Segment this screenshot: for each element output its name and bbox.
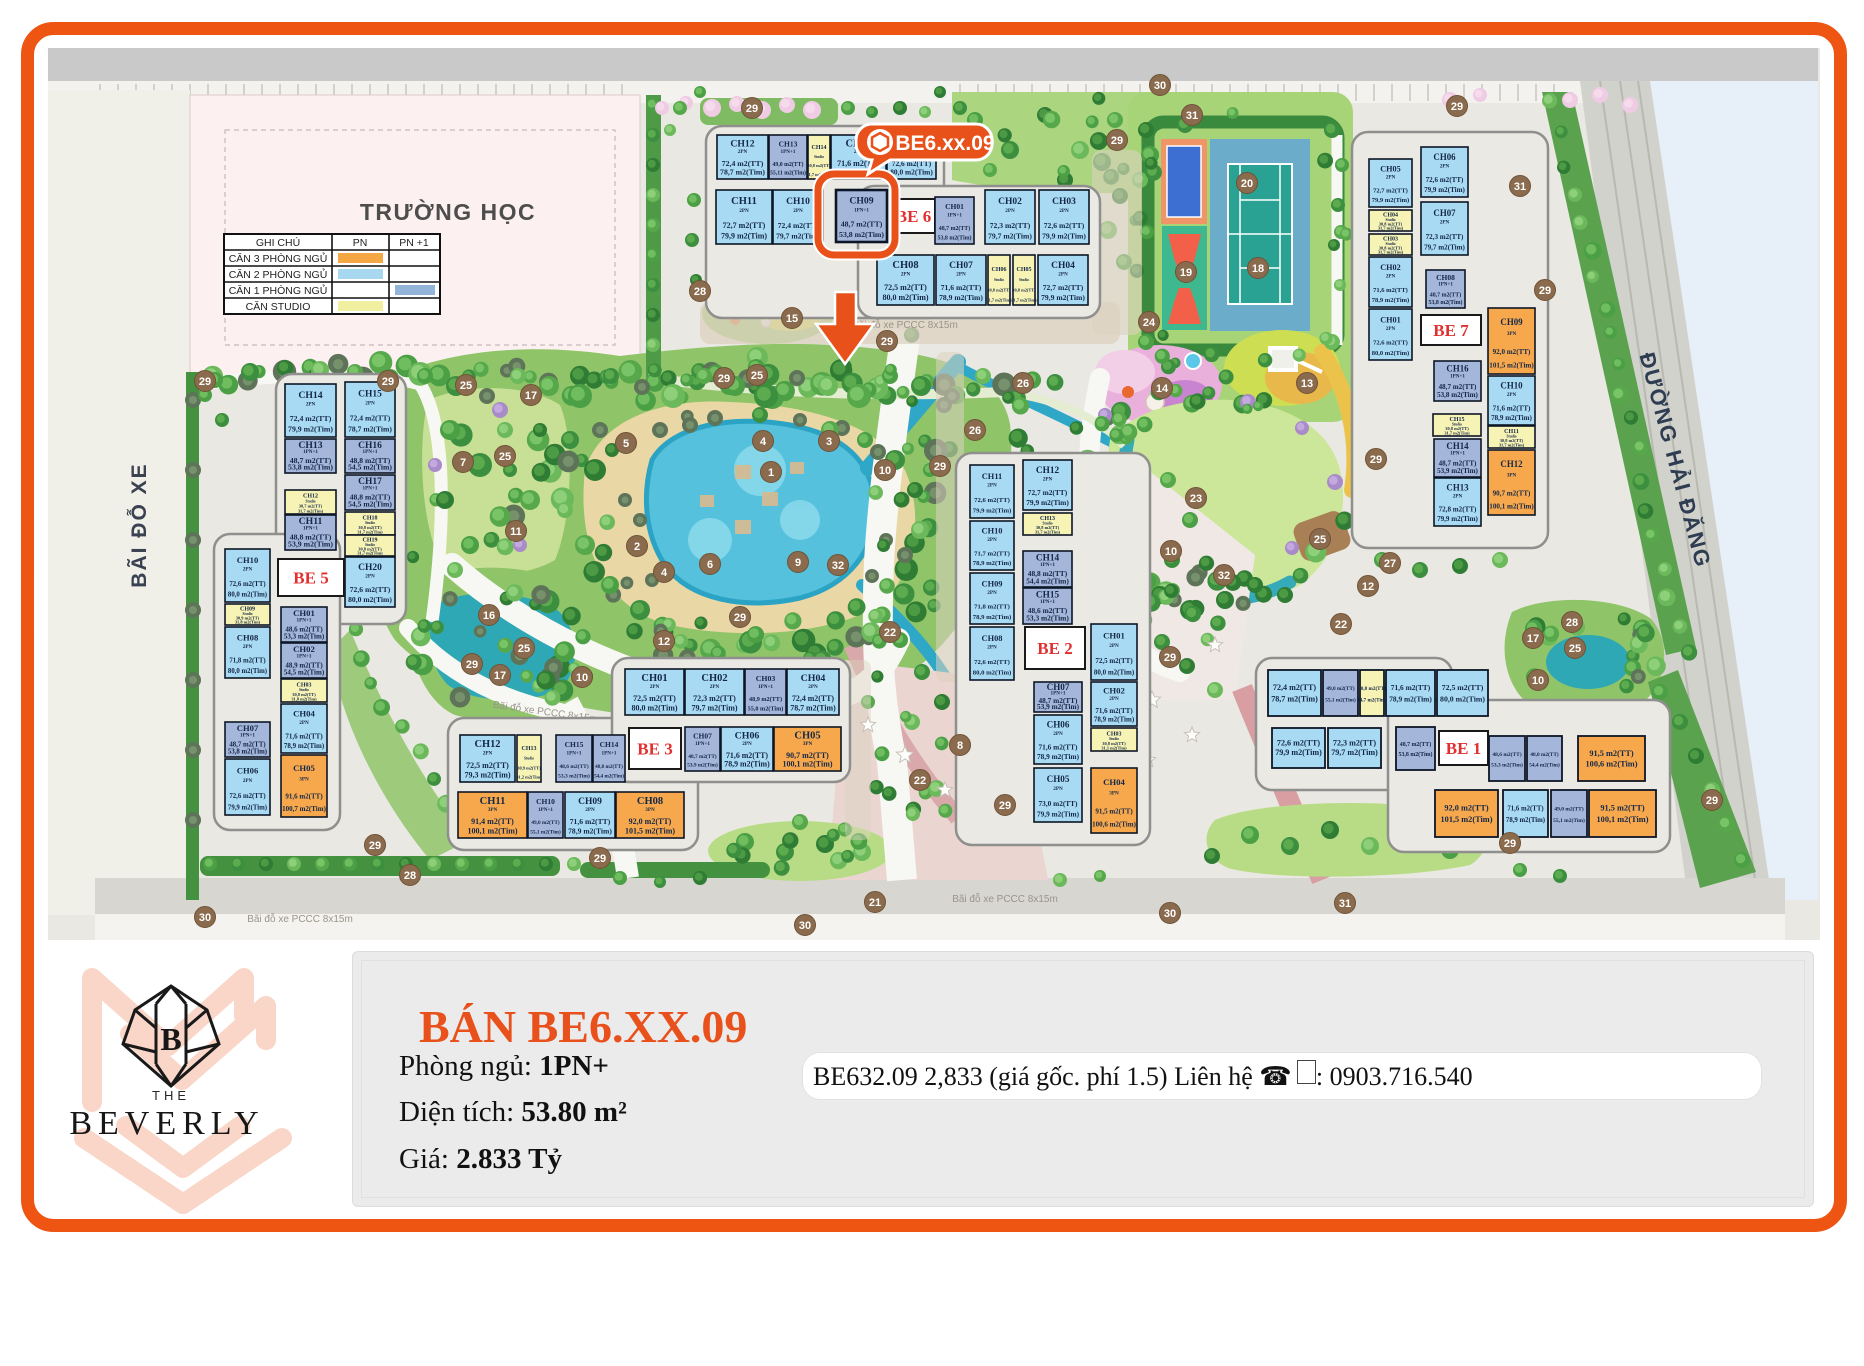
svg-text:79,9 m2(Tim): 79,9 m2(Tim): [1372, 197, 1409, 204]
svg-text:71,6 m2(TT): 71,6 m2(TT): [941, 283, 982, 292]
svg-text:2PN: 2PN: [987, 645, 997, 651]
svg-text:CH13: CH13: [1446, 482, 1469, 492]
svg-text:2PN: 2PN: [987, 483, 997, 489]
svg-text:91,5 m2(TT): 91,5 m2(TT): [1600, 804, 1644, 813]
svg-text:1PN+1: 1PN+1: [303, 525, 318, 531]
svg-text:CH06: CH06: [1433, 152, 1456, 162]
svg-text:25: 25: [460, 380, 472, 392]
svg-text:21: 21: [869, 897, 881, 909]
svg-text:1PN+1: 1PN+1: [1040, 599, 1055, 605]
svg-text:71,6 m2(TT): 71,6 m2(TT): [1373, 287, 1408, 294]
svg-text:2PN: 2PN: [987, 537, 997, 543]
svg-text:CĂN 3 PHÒNG NGỦ: CĂN 3 PHÒNG NGỦ: [229, 252, 328, 265]
svg-text:CH07: CH07: [693, 731, 712, 740]
svg-text:1PN+1: 1PN+1: [1438, 282, 1453, 288]
svg-text:2PN: 2PN: [1053, 786, 1063, 792]
svg-text:CH05: CH05: [1017, 267, 1032, 273]
svg-text:10: 10: [576, 672, 588, 684]
svg-text:30: 30: [1154, 80, 1166, 92]
svg-text:29: 29: [1370, 454, 1382, 466]
svg-text:11: 11: [510, 526, 522, 538]
svg-text:10: 10: [879, 465, 891, 477]
svg-text:101,5 m2(Tim): 101,5 m2(Tim): [1441, 815, 1493, 824]
svg-text:2PN: 2PN: [1053, 731, 1063, 737]
svg-text:CH13: CH13: [779, 139, 798, 148]
svg-text:31: 31: [1514, 181, 1526, 193]
svg-text:79,9 m2(Tim): 79,9 m2(Tim): [721, 232, 767, 241]
svg-text:2PN: 2PN: [793, 208, 803, 214]
svg-text:1PN+1: 1PN+1: [296, 653, 311, 659]
svg-text:100,1 m2(Tim): 100,1 m2(Tim): [1489, 503, 1534, 511]
svg-text:72,7 m2(TT): 72,7 m2(TT): [1028, 488, 1068, 497]
svg-text:10: 10: [1165, 546, 1177, 558]
svg-text:101,5 m2(Tim): 101,5 m2(Tim): [1489, 361, 1534, 369]
svg-text:17: 17: [1527, 633, 1539, 645]
svg-text:23: 23: [1190, 493, 1202, 505]
svg-text:3PN: 3PN: [803, 741, 813, 747]
svg-text:GHI CHÚ: GHI CHÚ: [256, 236, 300, 249]
svg-text:48,7 m2(TT): 48,7 m2(TT): [688, 753, 716, 760]
svg-text:CH06: CH06: [992, 267, 1007, 273]
svg-text:CH09: CH09: [578, 797, 602, 807]
svg-text:72,6 m2(TT): 72,6 m2(TT): [1373, 340, 1408, 347]
svg-text:1PN+1: 1PN+1: [854, 207, 869, 213]
svg-text:1PN+1: 1PN+1: [362, 449, 377, 455]
svg-text:53,3 m2(Tim): 53,3 m2(Tim): [1026, 613, 1069, 622]
svg-text:55,11 m2(Tim): 55,11 m2(Tim): [770, 170, 806, 177]
svg-text:CH08: CH08: [892, 260, 918, 271]
svg-text:CH02: CH02: [998, 197, 1022, 207]
svg-text:79,7 m2(Tim): 79,7 m2(Tim): [988, 232, 1032, 241]
svg-text:92,0 m2(TT): 92,0 m2(TT): [1444, 804, 1488, 813]
svg-text:31,1 m2(Tim): 31,1 m2(Tim): [1101, 745, 1127, 750]
svg-text:53,8 m2(Tim): 53,8 m2(Tim): [1399, 751, 1433, 758]
svg-text:78,7 m2(Tim): 78,7 m2(Tim): [720, 168, 765, 177]
svg-text:Studio: Studio: [524, 756, 534, 760]
svg-text:71,6 m2(TT): 71,6 m2(TT): [1095, 707, 1133, 715]
svg-text:2PN: 2PN: [1005, 208, 1015, 214]
svg-text:3PN: 3PN: [299, 776, 309, 782]
svg-text:53,8 m2(Tim): 53,8 m2(Tim): [1429, 299, 1463, 306]
svg-text:78,9 m2(Tim): 78,9 m2(Tim): [939, 293, 983, 302]
svg-text:18: 18: [1252, 263, 1264, 275]
svg-text:92,0 m2(TT): 92,0 m2(TT): [629, 817, 672, 826]
svg-text:78,9 m2(Tim): 78,9 m2(Tim): [1372, 297, 1409, 304]
svg-text:2PN: 2PN: [1440, 220, 1450, 226]
svg-text:CH14: CH14: [812, 145, 827, 151]
svg-text:54,5 m2(Tim): 54,5 m2(Tim): [284, 669, 325, 677]
svg-text:72,4 m2(TT): 72,4 m2(TT): [792, 694, 834, 703]
svg-text:79,9 m2(Tim): 79,9 m2(Tim): [1041, 293, 1085, 302]
svg-text:2PN: 2PN: [1507, 392, 1517, 398]
svg-text:53,3 m2(Tim): 53,3 m2(Tim): [284, 633, 325, 641]
svg-text:100,7 m2(Tim): 100,7 m2(Tim): [282, 805, 326, 813]
svg-text:48,7 m2(TT): 48,7 m2(TT): [1400, 741, 1431, 748]
svg-text:CH16: CH16: [1446, 363, 1469, 373]
svg-text:49,0 m2(TT): 49,0 m2(TT): [531, 819, 559, 826]
svg-text:48,7 m2(TT): 48,7 m2(TT): [939, 225, 970, 232]
svg-text:49,0 m2(TT): 49,0 m2(TT): [1326, 685, 1354, 692]
svg-text:CH10: CH10: [786, 197, 810, 207]
svg-text:53,8 m2(Tim): 53,8 m2(Tim): [228, 749, 267, 756]
svg-text:26: 26: [1017, 378, 1029, 390]
svg-text:22: 22: [1335, 619, 1347, 631]
svg-text:80,0 m2(Tim): 80,0 m2(Tim): [1094, 668, 1135, 676]
svg-text:71,6 m2(TT): 71,6 m2(TT): [285, 732, 323, 740]
svg-text:7: 7: [460, 457, 466, 469]
svg-text:5: 5: [623, 438, 629, 450]
svg-text:79,7 m2(Tim): 79,7 m2(Tim): [691, 703, 737, 712]
svg-text:2PN: 2PN: [710, 684, 720, 690]
svg-text:12: 12: [658, 636, 670, 648]
svg-text:CH15: CH15: [358, 389, 382, 399]
svg-text:31,8 m2(Tim): 31,8 m2(Tim): [235, 620, 261, 625]
svg-text:2PN: 2PN: [901, 272, 911, 278]
svg-text:49,0 m2(TT): 49,0 m2(TT): [773, 161, 804, 168]
svg-text:1PN+1: 1PN+1: [538, 807, 553, 813]
svg-text:17: 17: [525, 390, 537, 402]
svg-text:30,8 m2(TT): 30,8 m2(TT): [1012, 288, 1036, 293]
svg-text:CH11: CH11: [731, 196, 757, 207]
svg-text:72,3 m2(TT): 72,3 m2(TT): [990, 221, 1031, 230]
svg-text:29: 29: [734, 612, 746, 624]
svg-text:CH01: CH01: [1103, 631, 1125, 641]
svg-text:CH08: CH08: [237, 632, 259, 642]
svg-text:78,9 m2(Tim): 78,9 m2(Tim): [973, 614, 1012, 621]
svg-text:54,4 m2(Tim): 54,4 m2(Tim): [594, 772, 624, 779]
svg-text:72,5 m2(TT): 72,5 m2(TT): [884, 283, 927, 292]
svg-text:54,5 m2(Tim): 54,5 m2(Tim): [348, 463, 392, 472]
svg-text:1PN+1: 1PN+1: [362, 485, 377, 491]
svg-text:32: 32: [1218, 570, 1230, 582]
svg-text:29: 29: [718, 373, 730, 385]
svg-text:CH06: CH06: [237, 766, 259, 776]
svg-text:2PN: 2PN: [956, 272, 966, 278]
svg-text:3PN: 3PN: [1109, 791, 1119, 797]
svg-text:CH10: CH10: [536, 797, 555, 806]
svg-text:29: 29: [881, 336, 893, 348]
svg-text:4: 4: [661, 567, 668, 579]
svg-text:BE6.xx.09: BE6.xx.09: [895, 132, 994, 155]
svg-text:78,9 m2(Tim): 78,9 m2(Tim): [284, 742, 325, 750]
svg-text:22: 22: [884, 627, 896, 639]
svg-text:CH06: CH06: [1047, 720, 1070, 730]
svg-text:15: 15: [786, 313, 798, 325]
svg-text:72,6 m2(TT): 72,6 m2(TT): [1277, 739, 1320, 748]
svg-text:31,7 m2(Tim): 31,7 m2(Tim): [357, 551, 383, 556]
svg-text:72,7 m2(TT): 72,7 m2(TT): [723, 221, 766, 230]
svg-text:72,4 m2(TT): 72,4 m2(TT): [290, 414, 332, 423]
svg-text:CH10: CH10: [1500, 381, 1523, 391]
svg-text:78,7 m2(Tim): 78,7 m2(Tim): [1271, 694, 1318, 703]
svg-text:31,7 m2(Tim): 31,7 m2(Tim): [298, 508, 324, 513]
svg-text:78,9 m2(Tim): 78,9 m2(Tim): [973, 560, 1012, 567]
svg-text:72,6 m2(TT): 72,6 m2(TT): [350, 585, 391, 594]
svg-text:55,0 m2(Tim): 55,0 m2(Tim): [748, 705, 784, 712]
svg-text:53,9 m2(Tim): 53,9 m2(Tim): [288, 540, 333, 549]
svg-text:29: 29: [466, 659, 478, 671]
svg-text:53,8 m2(Tim): 53,8 m2(Tim): [938, 234, 972, 241]
svg-text:72,6 m2(TT): 72,6 m2(TT): [1044, 221, 1085, 230]
svg-text:1PN+1: 1PN+1: [695, 741, 710, 747]
svg-text:4: 4: [760, 436, 767, 448]
svg-text:31,8 m2(Tim): 31,8 m2(Tim): [291, 696, 317, 701]
svg-text:71,6 m2(TT): 71,6 m2(TT): [1493, 404, 1531, 412]
svg-text:2PN: 2PN: [742, 741, 752, 747]
svg-text:48,7 m2(TT): 48,7 m2(TT): [1439, 383, 1477, 391]
svg-text:78,9 m2(Tim): 78,9 m2(Tim): [1389, 694, 1432, 703]
svg-text:72,5 m2(TT): 72,5 m2(TT): [1095, 657, 1133, 665]
svg-text:25: 25: [518, 643, 530, 655]
svg-text:6: 6: [707, 559, 713, 571]
svg-text:CH07: CH07: [949, 261, 973, 271]
svg-text:Studio: Studio: [994, 278, 1004, 282]
svg-text:30,9 m2(TT): 30,9 m2(TT): [517, 765, 541, 770]
svg-text:80,0 m2(Tim): 80,0 m2(Tim): [973, 670, 1012, 677]
svg-text:79,9 m2(Tim): 79,9 m2(Tim): [288, 425, 333, 434]
svg-text:28: 28: [1566, 617, 1578, 629]
svg-text:48,7 m2(TT): 48,7 m2(TT): [229, 742, 265, 749]
svg-text:1PN+1: 1PN+1: [296, 617, 311, 623]
svg-text:30: 30: [1164, 908, 1176, 920]
svg-text:28: 28: [694, 286, 706, 298]
svg-text:CH04: CH04: [1103, 777, 1125, 787]
svg-text:14: 14: [1156, 383, 1169, 395]
svg-text:71,6 m2(TT): 71,6 m2(TT): [1039, 742, 1078, 751]
svg-text:CH09: CH09: [849, 196, 873, 207]
svg-text:78,7 m2(Tim): 78,7 m2(Tim): [790, 703, 836, 712]
svg-text:29: 29: [199, 376, 211, 388]
svg-text:48,6 m2(TT): 48,6 m2(TT): [559, 763, 589, 770]
svg-text:2PN: 2PN: [1386, 175, 1396, 181]
svg-text:CH05: CH05: [293, 763, 315, 773]
svg-text:80,0 m2(Tim): 80,0 m2(Tim): [348, 595, 392, 604]
svg-text:79,3 m2(Tim): 79,3 m2(Tim): [464, 770, 510, 779]
svg-text:78,9 m2(Tim): 78,9 m2(Tim): [1506, 817, 1545, 824]
svg-text:80,0 m2(Tim): 80,0 m2(Tim): [890, 168, 933, 177]
svg-text:1PN+1: 1PN+1: [240, 732, 255, 738]
svg-text:26: 26: [969, 425, 981, 437]
svg-text:29: 29: [934, 461, 946, 473]
svg-text:54,5 m2(Tim): 54,5 m2(Tim): [348, 500, 392, 509]
svg-text:79,9 m2(Tim): 79,9 m2(Tim): [1026, 498, 1069, 507]
svg-text:72,7 m2(TT): 72,7 m2(TT): [1043, 283, 1084, 292]
svg-text:25: 25: [751, 370, 763, 382]
svg-text:71,6 m2(TT): 71,6 m2(TT): [1391, 683, 1431, 692]
svg-text:31: 31: [1186, 110, 1198, 122]
svg-text:CH05: CH05: [1380, 164, 1400, 173]
svg-text:72,4 m2(TT): 72,4 m2(TT): [350, 414, 391, 423]
svg-text:72,6 m2(TT): 72,6 m2(TT): [1426, 176, 1464, 184]
svg-text:22: 22: [914, 775, 926, 787]
svg-text:79,9 m2(Tim): 79,9 m2(Tim): [1424, 186, 1465, 194]
svg-text:3PN: 3PN: [645, 807, 655, 813]
svg-text:1PN+1: 1PN+1: [566, 750, 581, 756]
svg-text:BE 6: BE 6: [896, 207, 931, 226]
svg-text:CH14: CH14: [1446, 441, 1469, 451]
svg-text:1PN+1: 1PN+1: [601, 750, 616, 756]
svg-text:2PN: 2PN: [738, 149, 748, 155]
svg-text:1PN+1: 1PN+1: [1450, 451, 1465, 457]
svg-text:2PN: 2PN: [585, 807, 595, 813]
svg-text:49,0 m2(TT): 49,0 m2(TT): [1554, 806, 1584, 813]
svg-text:90,7 m2(TT): 90,7 m2(TT): [1493, 490, 1531, 498]
svg-text:92,0 m2(TT): 92,0 m2(TT): [1493, 348, 1531, 356]
svg-text:CĂN STUDIO: CĂN STUDIO: [246, 300, 311, 313]
svg-text:34,7 m2(Tim): 34,7 m2(Tim): [1357, 696, 1387, 703]
svg-text:1PN+1: 1PN+1: [303, 449, 318, 455]
svg-text:12: 12: [1362, 581, 1374, 593]
svg-text:CH09: CH09: [1500, 317, 1523, 327]
svg-text:CH02: CH02: [701, 673, 727, 684]
svg-text:71,8 m2(TT): 71,8 m2(TT): [229, 658, 265, 665]
svg-text:17: 17: [494, 670, 506, 682]
svg-text:CH14: CH14: [600, 740, 619, 749]
svg-text:CĂN 2 PHÒNG NGỦ: CĂN 2 PHÒNG NGỦ: [229, 268, 328, 281]
svg-text:78,7 m2(Tim): 78,7 m2(Tim): [348, 425, 392, 434]
svg-text:79,9 m2(Tim): 79,9 m2(Tim): [973, 508, 1012, 515]
svg-text:CH03: CH03: [1052, 197, 1076, 207]
svg-text:100,1 m2(Tim): 100,1 m2(Tim): [782, 760, 832, 769]
svg-text:2PN: 2PN: [808, 684, 818, 690]
svg-text:BÃI ĐỖ XE: BÃI ĐỖ XE: [127, 462, 151, 587]
svg-text:2PN: 2PN: [243, 778, 253, 784]
svg-text:CH04: CH04: [293, 709, 315, 719]
svg-text:BE 1: BE 1: [1446, 739, 1481, 758]
svg-text:BE 3: BE 3: [637, 740, 672, 759]
svg-text:CH13: CH13: [522, 746, 537, 752]
svg-text:2PN: 2PN: [483, 750, 493, 756]
svg-text:CH12: CH12: [475, 739, 501, 750]
svg-text:54,4 m2(Tim): 54,4 m2(Tim): [1026, 576, 1069, 585]
svg-text:30,8 m2(TT): 30,8 m2(TT): [987, 288, 1011, 293]
svg-text:2PN: 2PN: [1043, 477, 1053, 483]
svg-text:48,8 m2(TT): 48,8 m2(TT): [595, 763, 623, 770]
svg-text:32: 32: [832, 560, 844, 572]
svg-text:79,9 m2(Tim): 79,9 m2(Tim): [1437, 515, 1478, 523]
svg-text:CH02: CH02: [1103, 685, 1125, 695]
svg-text:79,9 m2(Tim): 79,9 m2(Tim): [228, 804, 267, 811]
svg-text:30,8 m2(TT): 30,8 m2(TT): [1358, 685, 1386, 692]
svg-text:48,7 m2(TT): 48,7 m2(TT): [1430, 292, 1461, 299]
svg-text:8: 8: [957, 740, 963, 752]
svg-text:CH04: CH04: [801, 673, 826, 684]
svg-text:2PN: 2PN: [650, 684, 660, 690]
svg-text:29: 29: [1539, 285, 1551, 297]
svg-text:72,8 m2(TT): 72,8 m2(TT): [1439, 506, 1477, 514]
svg-text:1PN+1: 1PN+1: [1450, 373, 1465, 379]
svg-text:48,9 m2(TT): 48,9 m2(TT): [749, 696, 782, 703]
svg-text:100,6 m2(Tim): 100,6 m2(Tim): [1092, 821, 1136, 829]
svg-text:28: 28: [404, 870, 416, 882]
svg-text:100,6 m2(Tim): 100,6 m2(Tim): [1586, 760, 1638, 769]
svg-text:71,6 m2(TT): 71,6 m2(TT): [1507, 806, 1543, 813]
svg-text:53,9 m2(Tim): 53,9 m2(Tim): [1437, 467, 1478, 475]
svg-text:29: 29: [1111, 135, 1123, 147]
svg-text:55,1 m2(Tim): 55,1 m2(Tim): [1325, 696, 1356, 703]
svg-text:BEVERLY: BEVERLY: [70, 1105, 265, 1142]
svg-text:29: 29: [1451, 101, 1463, 113]
svg-text:BE 7: BE 7: [1433, 321, 1469, 340]
svg-text:2PN: 2PN: [1386, 274, 1396, 280]
svg-text:3PN: 3PN: [1507, 473, 1517, 479]
svg-text:53,9 m2(Tim): 53,9 m2(Tim): [1037, 702, 1080, 711]
svg-text:91,5 m2(TT): 91,5 m2(TT): [1095, 808, 1133, 816]
svg-text:1PN+1: 1PN+1: [947, 212, 962, 218]
svg-text:CH12: CH12: [1500, 459, 1523, 469]
svg-text:Studio: Studio: [1019, 278, 1029, 282]
svg-text:72,5 m2(TT): 72,5 m2(TT): [1442, 683, 1484, 692]
svg-text:101,5 m2(Tim): 101,5 m2(Tim): [625, 826, 675, 835]
svg-text:3PN: 3PN: [1507, 331, 1517, 337]
svg-text:29: 29: [746, 103, 758, 115]
svg-text:9: 9: [795, 557, 801, 569]
svg-text:72,4 m2(TT): 72,4 m2(TT): [722, 159, 764, 168]
svg-text:PN +1: PN +1: [399, 237, 429, 249]
svg-text:31,7 m2(Tim): 31,7 m2(Tim): [1035, 529, 1061, 534]
svg-text:CH07: CH07: [1433, 208, 1456, 218]
svg-text:29: 29: [382, 376, 394, 388]
svg-text:72,4 m2(TT): 72,4 m2(TT): [1273, 683, 1316, 692]
svg-text:13: 13: [1301, 378, 1313, 390]
svg-text:72,3 m2(TT): 72,3 m2(TT): [1426, 233, 1464, 241]
svg-text:CH01: CH01: [641, 673, 667, 684]
svg-text:24: 24: [1143, 317, 1156, 329]
svg-text:CH05: CH05: [794, 730, 820, 741]
svg-text:80,0 m2(Tim): 80,0 m2(Tim): [1372, 350, 1409, 357]
svg-text:29: 29: [1164, 652, 1176, 664]
svg-text:100,1 m2(Tim): 100,1 m2(Tim): [467, 826, 517, 835]
svg-text:72,7 m2(TT): 72,7 m2(TT): [1373, 188, 1408, 195]
svg-text:THE: THE: [152, 1088, 190, 1103]
svg-text:71,7 m2(TT): 71,7 m2(TT): [974, 550, 1010, 557]
svg-text:2PN: 2PN: [1386, 326, 1396, 332]
svg-text:54,4 m2(Tim): 54,4 m2(Tim): [1529, 762, 1560, 769]
svg-text:78,9 m2(Tim): 78,9 m2(Tim): [1037, 752, 1080, 761]
svg-text:30: 30: [799, 920, 811, 932]
svg-text:72,3 m2(TT): 72,3 m2(TT): [1333, 739, 1376, 748]
svg-text:2PN: 2PN: [987, 590, 997, 596]
svg-text:79,9 m2(Tim): 79,9 m2(Tim): [1275, 748, 1322, 757]
svg-text:53,3 m2(Tim): 53,3 m2(Tim): [1491, 762, 1523, 769]
svg-text:BE 2: BE 2: [1037, 639, 1072, 658]
svg-text:CH05: CH05: [1047, 774, 1070, 784]
svg-text:20: 20: [1241, 178, 1253, 190]
svg-text:31,7 m2(Tim): 31,7 m2(Tim): [1499, 442, 1525, 447]
svg-text:29: 29: [369, 840, 381, 852]
svg-text:19: 19: [1180, 267, 1192, 279]
svg-text:100,1 m2(Tim): 100,1 m2(Tim): [1597, 815, 1649, 824]
svg-text:31,7 m2(Tim): 31,7 m2(Tim): [1444, 430, 1470, 435]
svg-text:80,0 m2(Tim): 80,0 m2(Tim): [1440, 694, 1485, 703]
svg-text:2PN: 2PN: [1059, 208, 1069, 214]
svg-text:78,9 m2(Tim): 78,9 m2(Tim): [1491, 414, 1532, 422]
svg-text:31,7 m2(Tim): 31,7 m2(Tim): [986, 298, 1012, 303]
svg-text:CH14: CH14: [298, 390, 322, 401]
svg-text:CH06: CH06: [735, 730, 760, 741]
svg-text:CH11: CH11: [480, 796, 506, 807]
svg-text:CH01: CH01: [945, 202, 964, 211]
svg-text:CH20: CH20: [358, 563, 382, 573]
svg-text:71,6 m2(TT): 71,6 m2(TT): [726, 751, 768, 760]
svg-text:79,9 m2(Tim): 79,9 m2(Tim): [1037, 810, 1080, 819]
svg-text:2PN: 2PN: [299, 720, 309, 726]
svg-text:31,7 m2(Tim): 31,7 m2(Tim): [1378, 226, 1404, 231]
svg-text:72,3 m2(TT): 72,3 m2(TT): [693, 694, 736, 703]
svg-text:1PN+1: 1PN+1: [780, 149, 795, 155]
svg-text:72,5 m2(TT): 72,5 m2(TT): [633, 694, 676, 703]
svg-text:3PN: 3PN: [488, 807, 498, 813]
